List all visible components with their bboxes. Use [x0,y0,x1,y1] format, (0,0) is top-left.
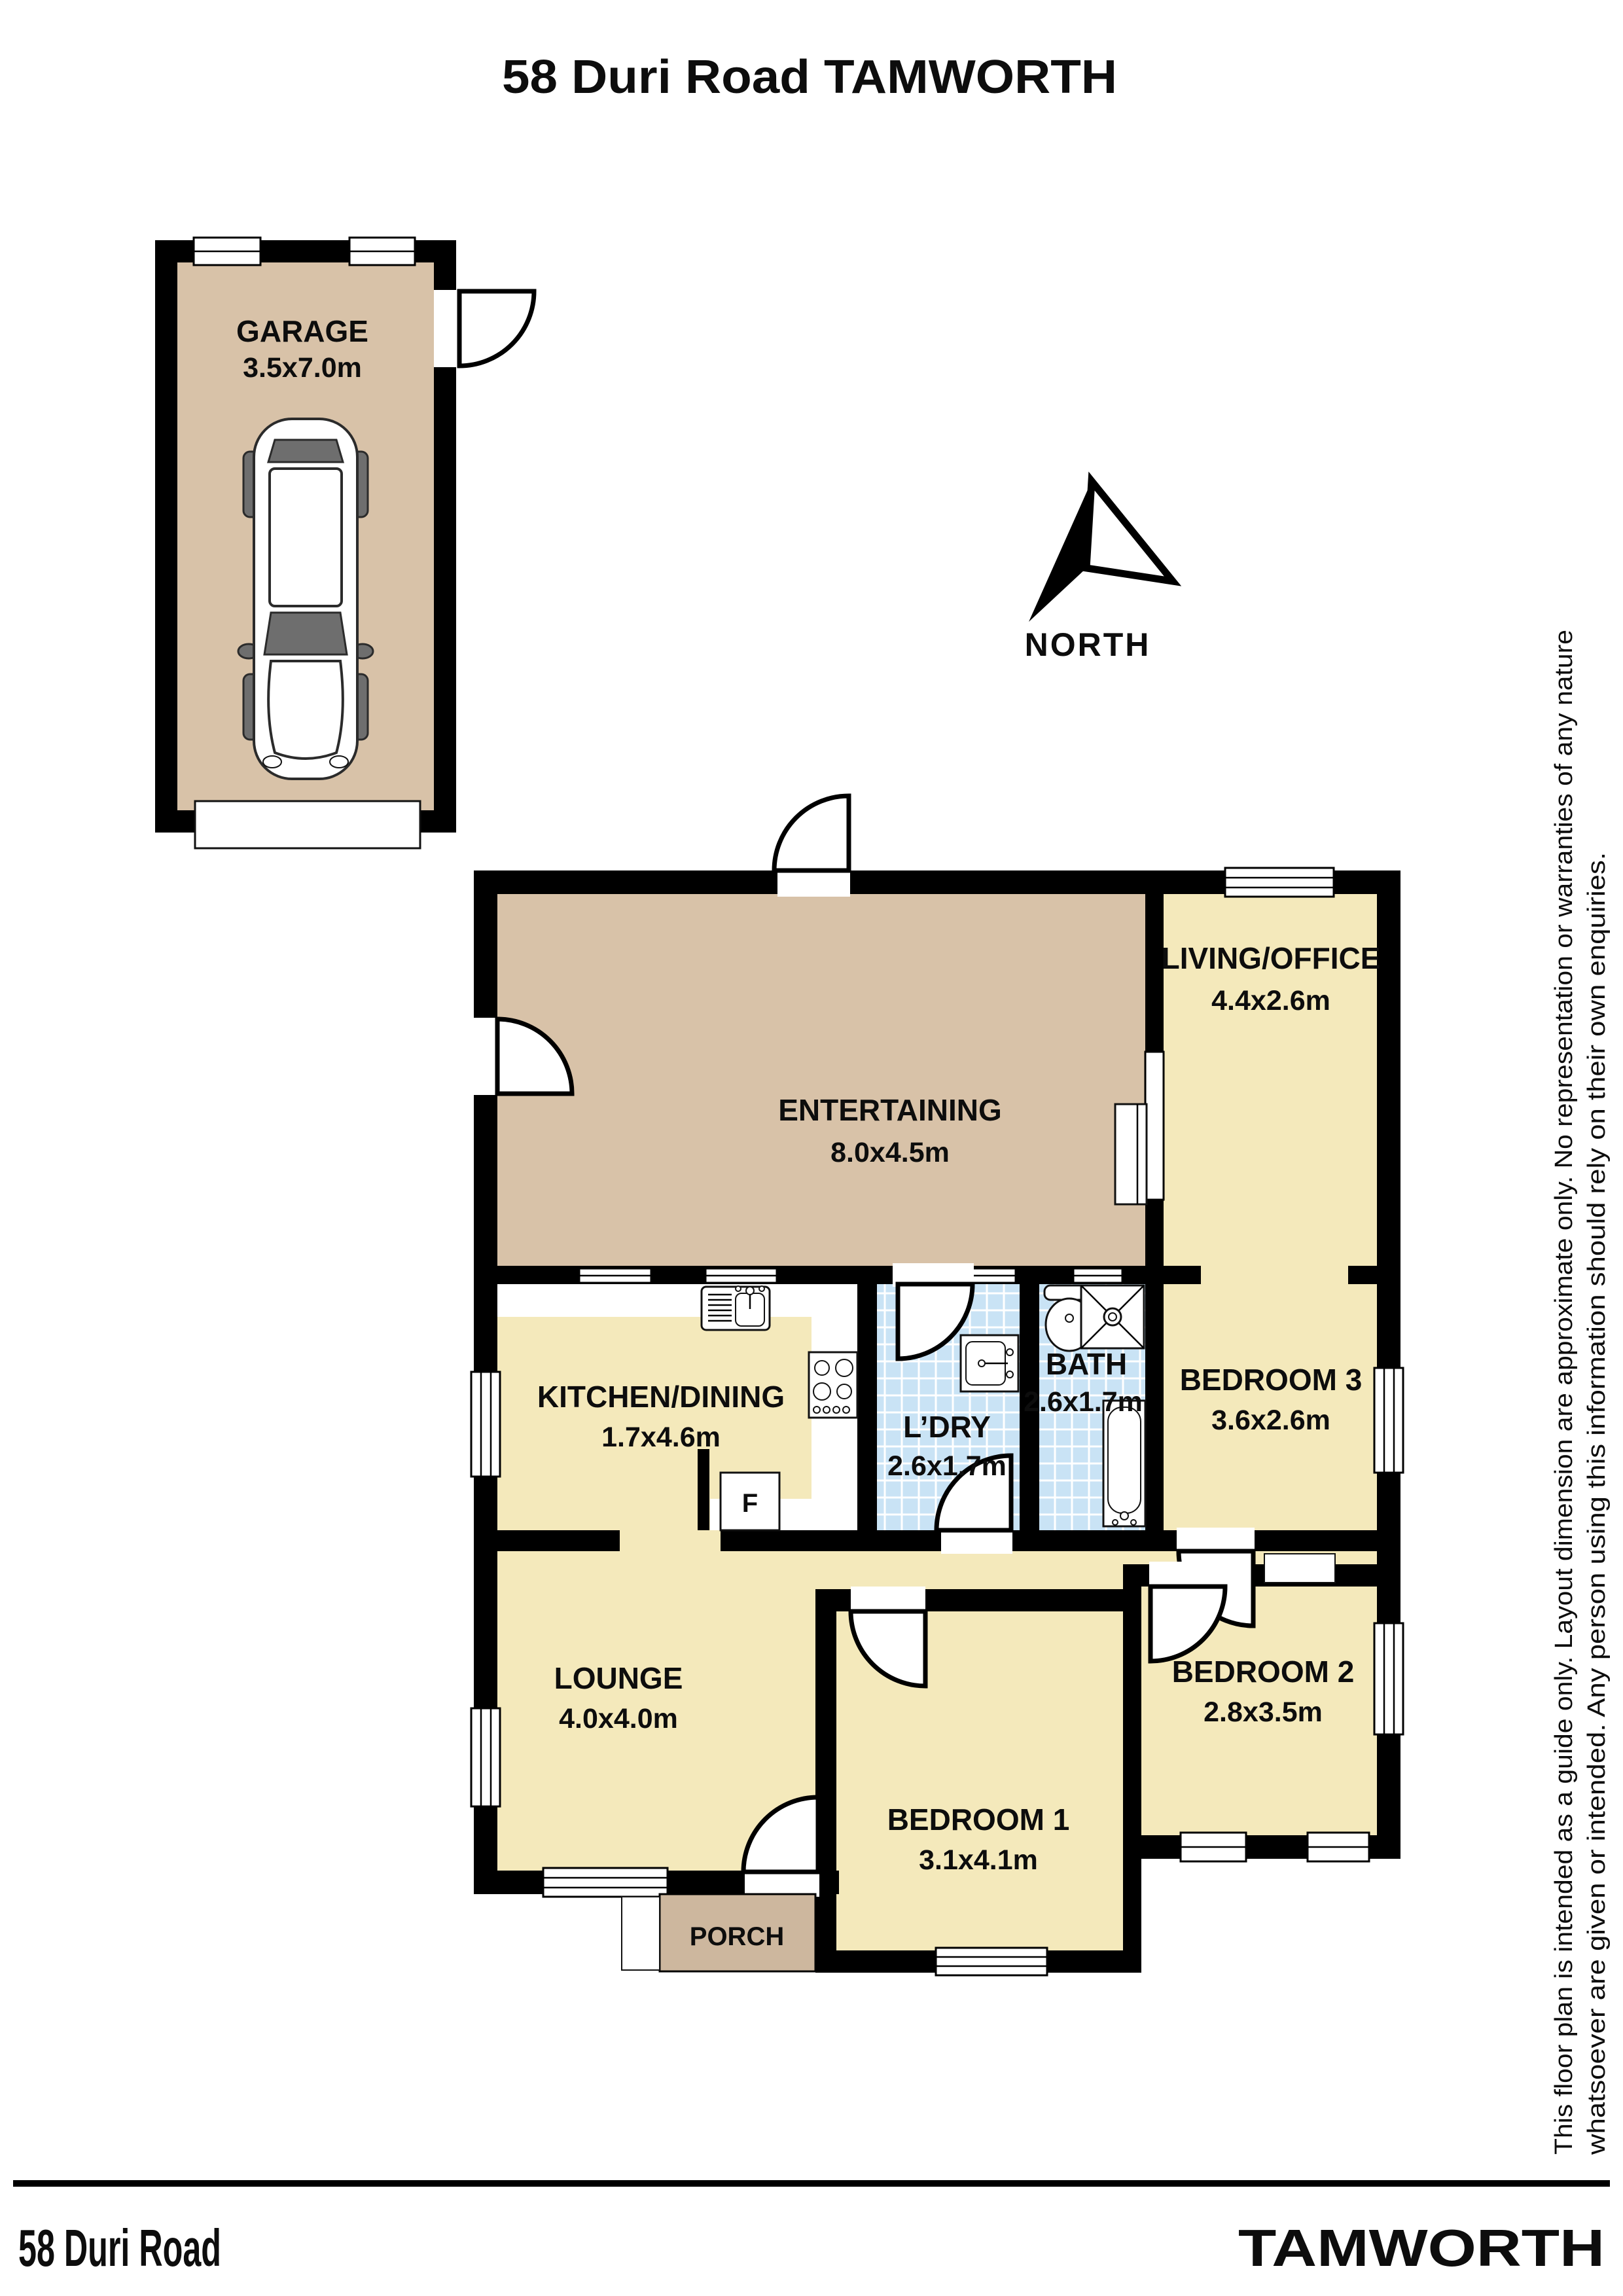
door-swing [459,291,534,366]
room-label: PORCH [690,1922,784,1951]
window [1073,1268,1122,1283]
window [1181,1833,1246,1861]
north-arrow-icon [1029,481,1173,622]
window [349,238,415,265]
garage-roller-door [195,801,420,848]
garage-block: GARAGE 3.5x7.0m [155,238,534,848]
wall-hall-e [1253,1530,1400,1551]
north-label: NORTH [1025,626,1151,663]
window [705,1268,777,1283]
entry-door [774,796,850,897]
room-label: L’DRY [903,1410,991,1444]
room-dims: 3.6x2.6m [1211,1405,1330,1436]
disclaimer-line-1: This floor plan is intended as a guide o… [1550,630,1578,2155]
fridge: F [721,1473,779,1530]
footer-suburb: TAMWORTH [1238,2219,1605,2277]
room-label: BATH [1046,1347,1127,1381]
room-dims: 8.0x4.5m [830,1137,950,1168]
window [471,1372,500,1477]
shower-icon [1081,1285,1144,1348]
window [194,238,260,265]
garage-door-opening [434,290,457,367]
room-label: BEDROOM 1 [887,1803,1070,1837]
laundry-tub-icon [961,1335,1018,1391]
disclaimer-line-2: whatsoever are given or intended. Any pe… [1583,852,1611,2155]
wall-hall-a [474,1530,620,1551]
room-label: BEDROOM 2 [1172,1655,1355,1689]
wall-lounge-bed1 [815,1589,836,1973]
room-dims: 3.1x4.1m [919,1844,1038,1876]
wall-laundry-left [857,1284,877,1533]
car-icon [238,419,373,779]
room-label: GARAGE [236,314,368,348]
window [1374,1623,1403,1734]
window [1308,1833,1369,1861]
wall-bed2-top-a [1141,1564,1150,1587]
fridge-label: F [742,1489,758,1518]
wall-bed1-right [1123,1564,1141,1973]
room-dims: 4.4x2.6m [1211,985,1330,1016]
room-label: LIVING/OFFICE [1162,941,1381,975]
window [936,1948,1047,1975]
window [471,1708,500,1806]
room-label: LOUNGE [554,1661,683,1695]
wall-hall-d [1011,1530,1178,1551]
door-swing [774,796,849,870]
linen-cupboard [1264,1554,1335,1583]
window [971,1268,1016,1283]
page-title: 58 Duri Road TAMWORTH [502,51,1117,103]
outside-patch [1141,1859,1400,1894]
room-label: ENTERTAINING [778,1093,1002,1127]
kitchen-counter [496,1283,857,1317]
floorplan-canvas: 58 Duri Road TAMWORTH [0,0,1623,2296]
window [1225,868,1334,897]
room-dims: 3.5x7.0m [243,352,362,384]
bathtub-icon [1103,1401,1145,1526]
stove-icon [809,1352,857,1418]
house-plan: F [471,796,1403,1975]
wall-hall-c [877,1530,942,1551]
room-label: BEDROOM 3 [1180,1363,1363,1397]
wall-hall-b [721,1530,877,1551]
window [1374,1368,1403,1473]
opening-living-bed3 [1201,1266,1348,1284]
room-dims: 2.8x3.5m [1204,1696,1323,1728]
room-dims: 2.6x1.7m [887,1450,1007,1482]
room-label: KITCHEN/DINING [537,1380,785,1414]
sink-icon [702,1286,770,1330]
wall-bed1-top-b [925,1589,1123,1611]
wall-fridge-stub [698,1449,709,1530]
wall-bed1-top-a [836,1589,851,1611]
entertaining-floor [497,894,1145,1266]
wall-living-left-lower [1145,1200,1164,1285]
window [543,1868,668,1897]
window [579,1268,651,1283]
floorplan-page: 58 Duri Road TAMWORTH [0,0,1623,2296]
wall-lounge-bottom-b [819,1871,839,1894]
footer-address: 58 Duri Road [18,2219,221,2277]
wall-bath-bed3 [1145,1284,1164,1533]
room-dims: 4.0x4.0m [559,1703,678,1734]
garage-wall-left [155,240,177,833]
room-dims: 1.7x4.6m [601,1422,721,1453]
room-dims: 2.6x1.7m [1024,1386,1143,1418]
